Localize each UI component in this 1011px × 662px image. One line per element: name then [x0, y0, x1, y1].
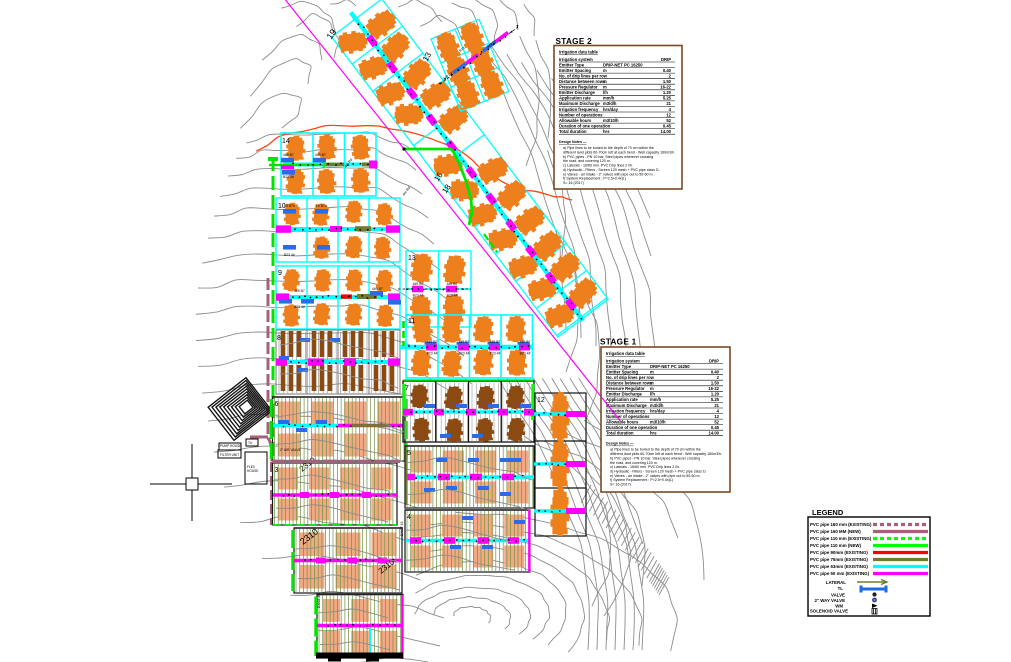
- svg-text:DRIP-NET PC 16250: DRIP-NET PC 16250: [650, 364, 690, 369]
- svg-text:8: 8: [277, 335, 281, 342]
- svg-text:Design Notes —: Design Notes —: [606, 442, 634, 446]
- svg-text:No. of drip lines per row: No. of drip lines per row: [606, 375, 655, 380]
- svg-text:f) System Replacement :: f) System Replacement : P=2.5+0.4x(L): [563, 177, 626, 181]
- svg-text:VALVE: VALVE: [831, 593, 845, 598]
- svg-text:DRIP-NET PC 16250: DRIP-NET PC 16250: [603, 62, 643, 67]
- svg-text:12: 12: [537, 397, 545, 404]
- svg-text:12: 12: [714, 414, 719, 419]
- svg-text:4#9 B7: 4#9 B7: [283, 153, 294, 157]
- svg-text:Maximum Discharge: Maximum Discharge: [559, 101, 600, 106]
- svg-text:3: 3: [275, 467, 279, 474]
- svg-text:Emitter Spacing: Emitter Spacing: [559, 68, 591, 73]
- svg-text:21: 21: [666, 101, 671, 106]
- svg-text:PUMP HOUSE: PUMP HOUSE: [220, 444, 241, 448]
- svg-text:PVC pipe 63mm (EXISTING): PVC pipe 63mm (EXISTING): [810, 564, 868, 569]
- svg-text:mm/h: mm/h: [603, 96, 615, 101]
- svg-text:mm/h: mm/h: [650, 397, 662, 402]
- svg-text:Number of operations: Number of operations: [559, 112, 603, 117]
- svg-text:Irrigation system: Irrigation system: [606, 358, 640, 363]
- svg-text:Pressure Regulator: Pressure Regulator: [559, 85, 598, 90]
- svg-text:Emitter Spacing: Emitter Spacing: [606, 370, 638, 375]
- svg-text:EXIST 50: EXIST 50: [317, 593, 321, 608]
- svg-text:4: 4: [407, 514, 411, 521]
- svg-text:4#9 B7: 4#9 B7: [520, 340, 531, 344]
- svg-text:hrs: hrs: [650, 431, 657, 436]
- svg-text:SOLENOID VALVE: SOLENOID VALVE: [810, 609, 848, 614]
- svg-text:Emitter Discharge: Emitter Discharge: [559, 90, 596, 95]
- svg-text:m: m: [650, 370, 654, 375]
- svg-text:1.20: 1.20: [711, 392, 720, 397]
- svg-text:21: 21: [714, 403, 719, 408]
- svg-text:16-22: 16-22: [708, 386, 719, 391]
- svg-text:Pressure Regulator: Pressure Regulator: [606, 386, 645, 391]
- svg-text:c) Laterals - 16/60 mm. PVC D: c) Laterals - 16/60 mm. PVC Drip lines 2…: [610, 465, 680, 469]
- svg-text:Irrigation data table: Irrigation data table: [606, 351, 646, 356]
- svg-text:Total duration: Total duration: [559, 129, 587, 134]
- svg-text:11: 11: [408, 318, 415, 325]
- svg-text:HOUSE: HOUSE: [247, 469, 258, 473]
- svg-text:Number of operations: Number of operations: [606, 414, 650, 419]
- svg-text:hrs: hrs: [603, 129, 610, 134]
- svg-text:PVC pipe 90mm (EXISTING): PVC pipe 90mm (EXISTING): [810, 550, 868, 555]
- svg-text:hrs/day: hrs/day: [603, 107, 619, 112]
- svg-text:PVC pipe 160 MM (NEW): PVC pipe 160 MM (NEW): [810, 529, 861, 534]
- svg-text:S= 16 (2017): S= 16 (2017): [610, 483, 631, 487]
- svg-text:14.00: 14.00: [661, 129, 672, 134]
- svg-text:TL: TL: [838, 586, 844, 591]
- svg-text:B23 4#: B23 4#: [284, 253, 295, 257]
- svg-text:9: 9: [278, 270, 282, 277]
- svg-text:2" AIR VALVE: 2" AIR VALVE: [280, 448, 302, 452]
- svg-text:B23 4#: B23 4#: [427, 352, 438, 356]
- svg-text:Allowable hours: Allowable hours: [606, 419, 639, 424]
- svg-text:m: m: [603, 68, 607, 73]
- svg-text:No. of drip lines per row: No. of drip lines per row: [559, 74, 608, 79]
- svg-text:B23 4#: B23 4#: [447, 294, 458, 298]
- svg-text:Duration of one operation: Duration of one operation: [606, 425, 658, 430]
- svg-text:Irrigation data table: Irrigation data table: [559, 50, 599, 55]
- svg-text:PVC pipe 75mm (EXISTING): PVC pipe 75mm (EXISTING): [810, 557, 868, 562]
- svg-text:5.25: 5.25: [663, 96, 672, 101]
- svg-text:14.00: 14.00: [709, 431, 720, 436]
- svg-text:4#9 B7: 4#9 B7: [372, 287, 383, 291]
- svg-text:Distance between rows: Distance between rows: [606, 381, 653, 386]
- svg-text:DRIP: DRIP: [661, 57, 671, 62]
- svg-text:e) Valves - air intake - 2" v: e) Valves - air intake - 2" valves with …: [610, 474, 701, 478]
- svg-text:PVC pipe 160 mm (EXISTING): PVC pipe 160 mm (EXISTING): [810, 522, 872, 527]
- svg-text:B23 4#: B23 4#: [294, 305, 305, 309]
- svg-text:Maximum Discharge: Maximum Discharge: [606, 403, 647, 408]
- svg-text:m: m: [603, 79, 607, 84]
- svg-text:52: 52: [666, 118, 671, 123]
- svg-text:TU: TU: [248, 441, 253, 445]
- svg-text:FILTER UNIT: FILTER UNIT: [220, 453, 239, 457]
- svg-text:EXIST 63: EXIST 63: [400, 521, 404, 536]
- svg-text:B23 4#: B23 4#: [520, 352, 531, 356]
- svg-text:Allowable hours: Allowable hours: [559, 118, 592, 123]
- svg-text:m3/10/h: m3/10/h: [650, 419, 666, 424]
- svg-text:LATERAL: LATERAL: [826, 580, 846, 585]
- svg-text:Emitter Discharge: Emitter Discharge: [606, 392, 643, 397]
- svg-text:l/h: l/h: [650, 392, 655, 397]
- svg-text:DRIP: DRIP: [709, 358, 719, 363]
- svg-text:PVC pipe 110 mm (NEW): PVC pipe 110 mm (NEW): [810, 543, 862, 548]
- svg-text:1.20: 1.20: [663, 90, 672, 95]
- svg-text:4#9 B7: 4#9 B7: [427, 340, 438, 344]
- svg-text:m: m: [650, 381, 654, 386]
- svg-text:the road, and covering 120 m.: the road, and covering 120 m.: [563, 159, 611, 163]
- svg-text:1.50: 1.50: [663, 79, 672, 84]
- svg-text:Distance between rows: Distance between rows: [559, 79, 606, 84]
- svg-text:1.50: 1.50: [711, 381, 720, 386]
- svg-text:a) Pipe lines to be buried to: a) Pipe lines to be buried to the depth …: [610, 448, 701, 452]
- svg-text:m: m: [650, 386, 654, 391]
- svg-text:2" WAY VALVE: 2" WAY VALVE: [815, 598, 846, 603]
- svg-text:m3/d/h: m3/d/h: [603, 101, 617, 106]
- svg-text:6: 6: [275, 401, 279, 408]
- svg-text:4#9 B7: 4#9 B7: [413, 282, 424, 286]
- svg-text:m: m: [603, 85, 607, 90]
- svg-text:5.25: 5.25: [711, 397, 720, 402]
- svg-text:L9 B7#: L9 B7#: [316, 204, 327, 208]
- svg-text:0.40: 0.40: [711, 370, 720, 375]
- svg-text:Application rate: Application rate: [559, 96, 591, 101]
- svg-text:b) PVC pipes - PN 10 bar. Ste: b) PVC pipes - PN 10 bar. Steel pipes wh…: [610, 456, 700, 460]
- svg-text:B23 4#: B23 4#: [490, 352, 501, 356]
- svg-text:0.45: 0.45: [711, 425, 720, 430]
- svg-text:16-22: 16-22: [660, 85, 671, 90]
- svg-text:Duration of one operation: Duration of one operation: [559, 123, 611, 128]
- svg-text:4#9 B7: 4#9 B7: [294, 289, 305, 293]
- svg-text:S= 16 (2017): S= 16 (2017): [563, 181, 584, 185]
- svg-text:STAGE 1: STAGE 1: [600, 338, 637, 347]
- svg-text:4#9 B7: 4#9 B7: [447, 282, 458, 286]
- svg-text:hrs/day: hrs/day: [650, 408, 666, 413]
- svg-text:12: 12: [666, 112, 671, 117]
- svg-text:m3/10/h: m3/10/h: [603, 118, 619, 123]
- svg-text:Irrigation system: Irrigation system: [559, 57, 593, 62]
- svg-text:PVC pipe 110 mm (EXISTING): PVC pipe 110 mm (EXISTING): [810, 536, 872, 541]
- svg-text:d) Hydraulic - Filters - Scre: d) Hydraulic - Filters - Screen 120 mesh…: [563, 168, 660, 172]
- svg-text:Total duration: Total duration: [606, 431, 634, 436]
- svg-text:4#9 B7: 4#9 B7: [490, 340, 501, 344]
- svg-text:Design Notes —: Design Notes —: [559, 140, 587, 144]
- svg-text:7: 7: [405, 385, 409, 392]
- svg-text:B23 4#: B23 4#: [413, 294, 424, 298]
- svg-text:Application rate: Application rate: [606, 397, 638, 402]
- svg-text:14: 14: [282, 138, 290, 145]
- svg-text:STAGE 2: STAGE 2: [556, 37, 593, 46]
- svg-text:4#9 B7: 4#9 B7: [315, 153, 326, 157]
- svg-text:Emitter Type: Emitter Type: [606, 364, 632, 369]
- svg-text:B23 4#: B23 4#: [283, 175, 294, 179]
- svg-text:l/h: l/h: [603, 90, 608, 95]
- svg-text:0.40: 0.40: [663, 68, 672, 73]
- svg-text:4#9 B7: 4#9 B7: [459, 340, 470, 344]
- svg-text:Emitter Type: Emitter Type: [559, 62, 585, 67]
- svg-text:LEGEND: LEGEND: [812, 508, 844, 517]
- svg-text:0.45: 0.45: [663, 123, 672, 128]
- svg-text:10: 10: [278, 203, 286, 210]
- svg-text:13: 13: [408, 255, 416, 262]
- svg-text:B23 4#: B23 4#: [459, 352, 470, 356]
- svg-text:m3/d/h: m3/d/h: [650, 403, 664, 408]
- svg-text:PVC pipe 50 mm (EXISTING): PVC pipe 50 mm (EXISTING): [810, 571, 870, 576]
- svg-text:52: 52: [714, 419, 719, 424]
- svg-text:Irrigation frequency: Irrigation frequency: [559, 107, 599, 112]
- svg-text:different land plots 60-70cm l: different land plots 60-70cm left at eac…: [563, 151, 675, 155]
